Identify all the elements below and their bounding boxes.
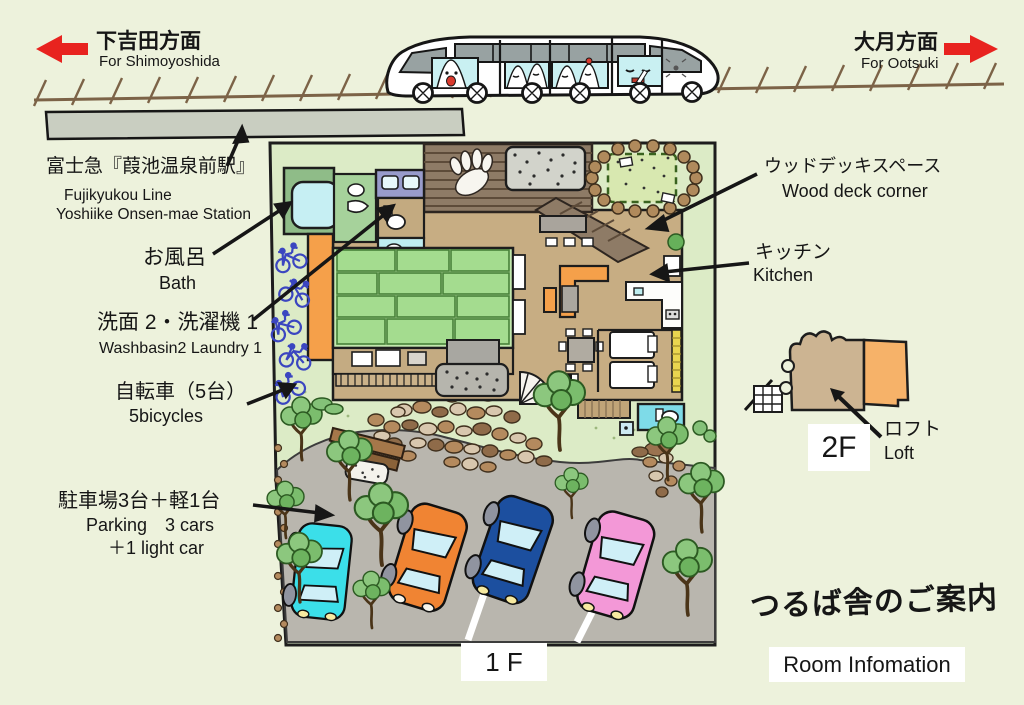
washbasin-label-en: Washbasin2 Laundry 1: [99, 340, 262, 358]
wood-deck-label-jp: ウッドデッキスペース: [764, 156, 941, 177]
arrow-right-icon: [944, 35, 998, 63]
loft-label-jp: ロフト: [884, 419, 941, 441]
station-label-en1: Fujikyukou Line: [64, 187, 172, 205]
hallway: [308, 234, 333, 360]
direction-left-label-en: For Shimoyoshida: [99, 53, 220, 70]
kitchen-label-en: Kitchen: [753, 265, 813, 286]
arrow-left-icon: [36, 35, 88, 63]
porch: [578, 400, 630, 418]
train-icon: [387, 37, 718, 103]
direction-right-label-en: For Ootsuki: [861, 55, 939, 72]
washbasin-label-jp: 洗面 2・洗濯機 1: [97, 311, 258, 335]
bath-label-jp: お風呂: [143, 246, 206, 270]
floor-1f-badge: 1 F: [461, 643, 547, 681]
loft-label-en: Loft: [884, 443, 914, 464]
map-title-en: Room Infomation: [769, 647, 965, 682]
wood-deck-label-en: Wood deck corner: [782, 181, 928, 202]
parking-label-jp: 駐車場3台＋軽1台: [58, 490, 220, 513]
direction-right-label-jp: 大月方面: [854, 31, 938, 55]
washbasin-room: [376, 170, 424, 198]
parking-label-en1: Parking 3 cars: [86, 515, 214, 536]
house-floorplan-1f: [284, 140, 702, 435]
gravel-court: [506, 147, 585, 190]
bath-label-en: Bath: [159, 273, 196, 294]
direction-left-label-jp: 下吉田方面: [96, 30, 201, 54]
parking-label-en2: ＋1 light car: [108, 538, 204, 559]
tatami-room: [333, 248, 525, 348]
station-platform: [46, 109, 464, 139]
bicycles-label-jp: 自転車（5台）: [115, 381, 246, 404]
floor-2f-badge: 2F: [808, 424, 870, 471]
station-label-jp: 富士急『葭池温泉前駅』: [46, 156, 255, 178]
room-information-map: 下吉田方面 For Shimoyoshida 大月方面 For Ootsuki …: [0, 0, 1024, 705]
station-label-en2: Yoshiike Onsen-mae Station: [56, 206, 251, 224]
kitchen-label-jp: キッチン: [755, 242, 831, 264]
bicycles-label-en: 5bicycles: [129, 406, 203, 427]
